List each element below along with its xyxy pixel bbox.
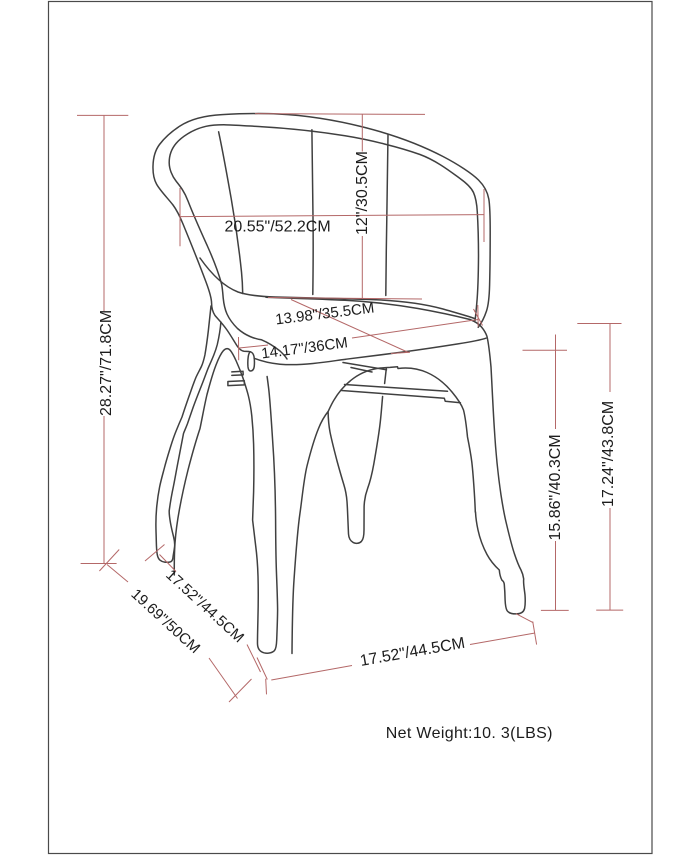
svg-text:17.52"/44.5CM: 17.52"/44.5CM — [359, 635, 467, 670]
svg-text:12"/30.5CM: 12"/30.5CM — [354, 151, 371, 235]
svg-text:15.86"/40.3CM: 15.86"/40.3CM — [547, 434, 564, 540]
svg-text:14.17"/36CM: 14.17"/36CM — [260, 334, 349, 362]
svg-text:13.98"/35.5CM: 13.98"/35.5CM — [274, 299, 375, 328]
svg-text:28.27"/71.8CM: 28.27"/71.8CM — [98, 310, 115, 416]
svg-text:20.55"/52.2CM: 20.55"/52.2CM — [225, 219, 331, 236]
svg-text:17.24"/43.8CM: 17.24"/43.8CM — [600, 401, 617, 507]
svg-text:Net Weight:10. 3(LBS): Net Weight:10. 3(LBS) — [386, 725, 553, 742]
